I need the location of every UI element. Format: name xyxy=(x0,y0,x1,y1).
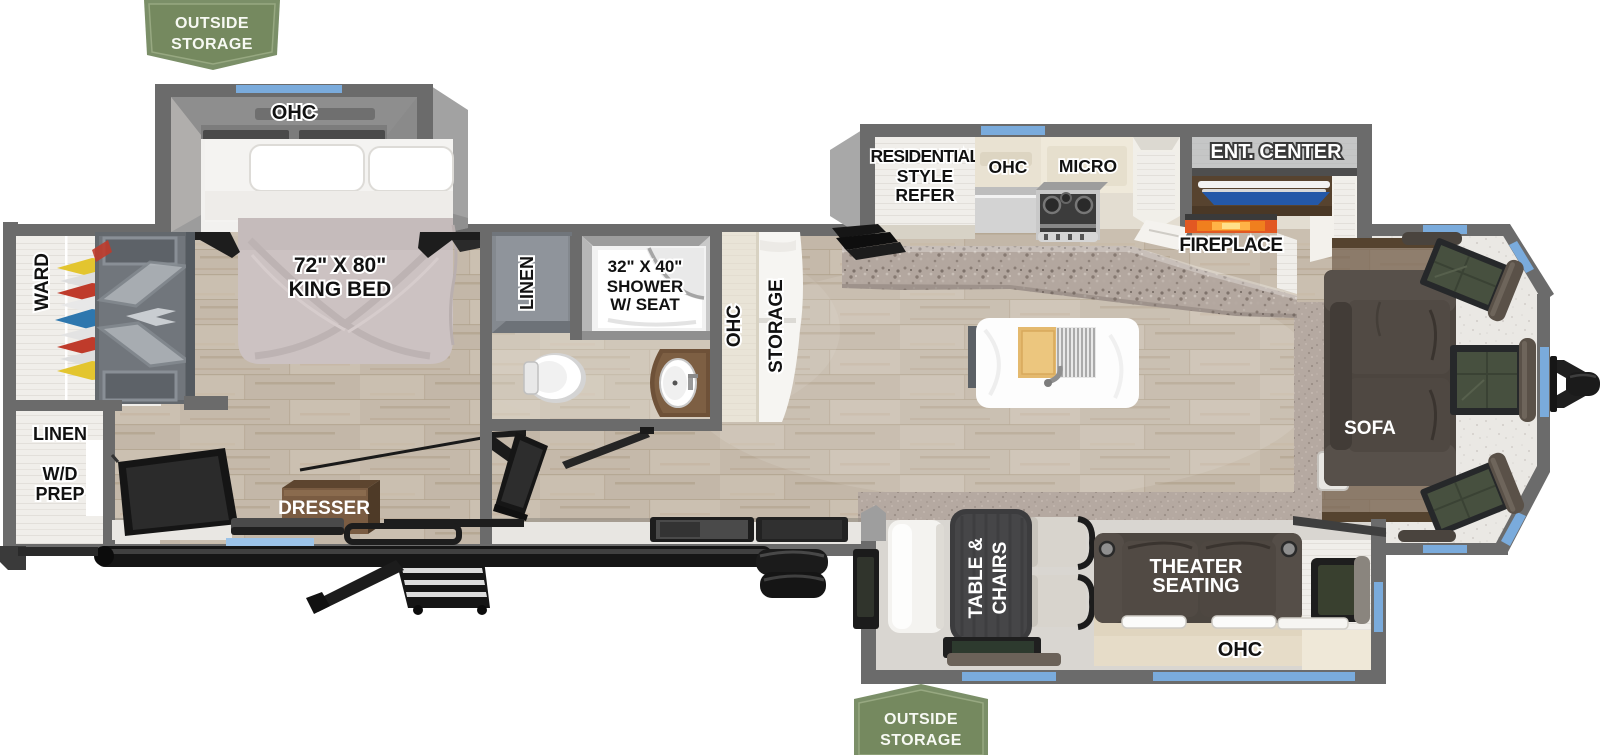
svg-text:SHOWER: SHOWER xyxy=(607,277,684,296)
svg-text:STORAGE: STORAGE xyxy=(880,732,962,749)
svg-text:REFER: REFER xyxy=(895,185,955,205)
svg-text:W/ SEAT: W/ SEAT xyxy=(610,295,680,314)
svg-text:LINEN: LINEN xyxy=(517,256,537,310)
svg-text:SEATING: SEATING xyxy=(1152,575,1239,597)
svg-text:OHC: OHC xyxy=(272,102,316,124)
svg-text:OUTSIDE: OUTSIDE xyxy=(884,711,958,728)
svg-text:STORAGE: STORAGE xyxy=(766,279,787,373)
svg-text:OUTSIDE: OUTSIDE xyxy=(175,15,249,32)
svg-text:32" X 40": 32" X 40" xyxy=(608,257,683,276)
svg-text:W/D: W/D xyxy=(43,464,78,484)
svg-text:OHC: OHC xyxy=(989,157,1028,177)
svg-text:OHC: OHC xyxy=(724,305,745,348)
svg-text:KING BED: KING BED xyxy=(289,278,392,301)
svg-text:TABLE &: TABLE & xyxy=(966,537,987,618)
svg-text:DRESSER: DRESSER xyxy=(278,498,370,519)
svg-text:RESIDENTIAL: RESIDENTIAL xyxy=(871,146,981,166)
svg-text:PREP: PREP xyxy=(35,484,84,504)
svg-text:LINEN: LINEN xyxy=(33,424,87,444)
svg-text:STYLE: STYLE xyxy=(897,166,953,186)
svg-text:72" X 80": 72" X 80" xyxy=(294,254,386,277)
svg-text:MICRO: MICRO xyxy=(1059,156,1117,176)
svg-text:SOFA: SOFA xyxy=(1344,418,1396,439)
svg-text:STORAGE: STORAGE xyxy=(171,36,253,53)
svg-text:FIREPLACE: FIREPLACE xyxy=(1179,235,1282,256)
svg-text:ENT. CENTER: ENT. CENTER xyxy=(1210,141,1342,163)
svg-text:OHC: OHC xyxy=(1218,639,1262,661)
svg-text:WARD: WARD xyxy=(32,253,53,311)
svg-text:CHAIRS: CHAIRS xyxy=(990,542,1011,615)
